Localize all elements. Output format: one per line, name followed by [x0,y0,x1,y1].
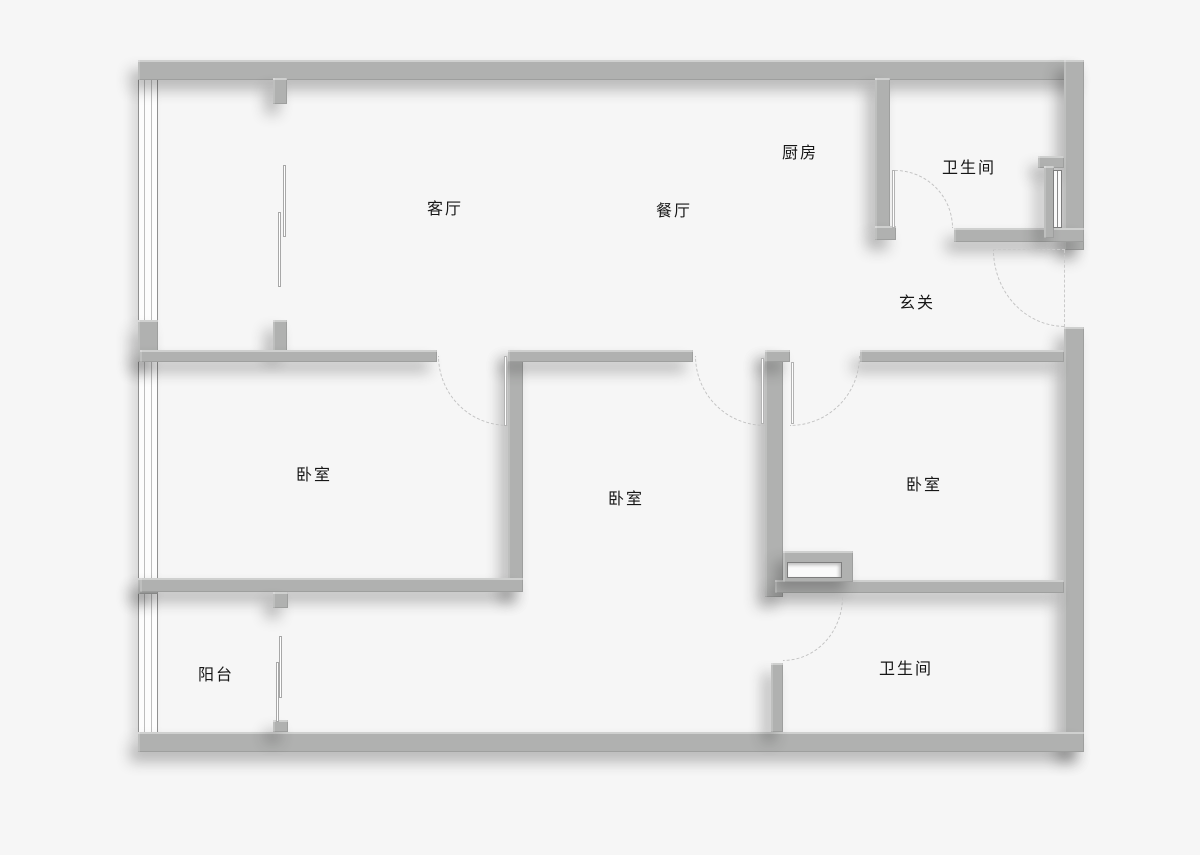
arc-bedroom-left [438,356,508,426]
room-label-living-room: 客厅 [427,195,463,219]
room-label-entry-hall: 玄关 [899,289,935,313]
window-bedright-bath [787,562,842,578]
leaf-bathroom-top [892,170,895,228]
wall-kitchen-bath [875,78,890,228]
wall-living-bedleft [140,350,437,362]
sliding-panel-balcony-a [279,636,282,698]
stub-top-strip-upper [273,78,287,104]
arc-bedroom-middle [695,356,765,426]
arc-bedroom-right [790,356,860,426]
sliding-panel-balcony-b [276,662,279,722]
outer-wall-top [138,60,1084,80]
entry-door-open-line [1064,250,1065,327]
leaf-bedroom-left [504,356,507,426]
arc-bathroom-top [895,170,953,228]
wall-bedleft-balcony [140,578,523,592]
room-label-bedroom-left: 卧室 [296,461,332,485]
arc-bathroom-bottom [783,597,843,661]
wall-bedmid-hall-cap [765,350,790,362]
left-window-top-strip [138,80,158,320]
floor-plan-page: { "title": "apartment-floor-plan", "canv… [0,0,1200,855]
wall-bedmid-hall-vert [765,350,783,597]
room-label-bedroom-right: 卧室 [906,471,942,495]
leaf-bedroom-right [791,362,794,424]
wall-bedleft-bedmid-vert [508,350,523,592]
leaf-bedroom-middle [761,358,764,424]
wall-bathbottom-left [771,663,783,732]
left-window-balcony [138,594,158,732]
outer-wall-bottom [138,732,1084,752]
room-label-kitchen: 厨房 [782,139,818,163]
arc-entry-door [993,250,1065,327]
wall-bedmid-top [508,350,693,362]
entry-door-closed-line [993,249,1065,250]
wall-bathtop-bottom [954,228,1084,242]
wall-bedright-top [860,350,1064,362]
outer-wall-right-upper [1064,60,1084,250]
room-label-bathroom-bottom: 卫生间 [879,655,933,679]
outer-wall-right-lower [1064,327,1084,752]
window-shaft [1053,170,1062,228]
left-window-bedroom [138,362,158,578]
wall-kitchen-bath-foot [875,226,896,240]
room-label-bedroom-middle: 卧室 [608,485,644,509]
room-label-balcony: 阳台 [198,661,234,685]
room-label-bathroom-top: 卫生间 [942,154,996,178]
floor-plan-canvas: 客厅餐厅厨房卫生间玄关卧室卧室卧室阳台卫生间 [0,0,1200,855]
stub-balcony-upper [273,592,288,608]
sliding-panel-strip-b [278,212,281,287]
room-label-dining-room: 餐厅 [656,197,692,221]
stub-top-strip-lower [273,320,287,352]
sliding-panel-strip-a [283,165,286,237]
